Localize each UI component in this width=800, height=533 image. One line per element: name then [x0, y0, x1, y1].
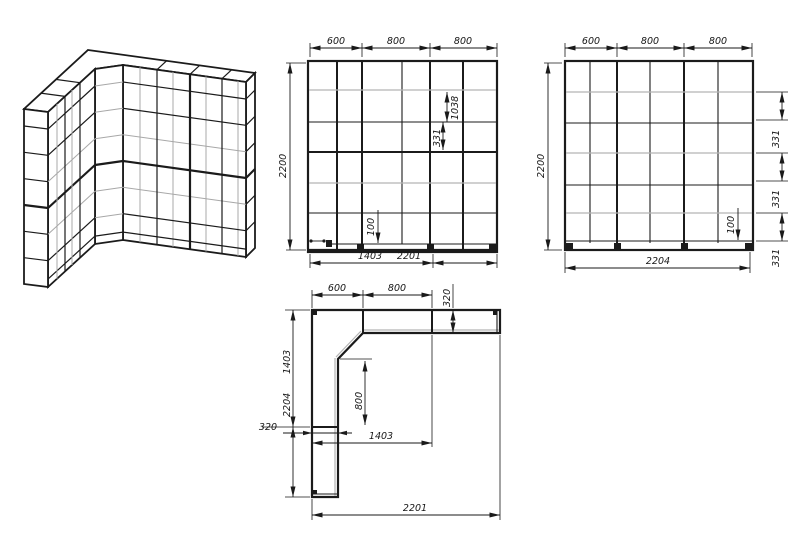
technical-drawing-page: 600 800 800 2200 1038 331 100 1403 2201 — [0, 0, 800, 533]
side-dim-800a: 800 — [641, 36, 659, 47]
front-dim-1038: 1038 — [450, 96, 461, 120]
side-dim-331a: 331 — [771, 130, 782, 148]
front-dim-2201: 2201 — [397, 251, 421, 262]
plan-dim-1403-inner: 1403 — [369, 431, 393, 442]
front-elevation: 600 800 800 2200 1038 331 100 1403 2201 — [278, 36, 497, 268]
side-dim-600: 600 — [582, 36, 600, 47]
side-dim-331c: 331 — [771, 249, 782, 267]
plan-view: 600 800 320 1403 2204 800 320 1403 2201 — [259, 283, 500, 520]
side-dim-800b: 800 — [709, 36, 727, 47]
front-dim-height: 2200 — [278, 154, 289, 178]
front-dim-1403: 1403 — [358, 251, 382, 262]
side-body-outline — [565, 61, 753, 250]
plan-dim-320-width: 320 — [259, 422, 277, 433]
side-dim-2204: 2204 — [646, 256, 670, 267]
front-dim-331: 331 — [432, 129, 443, 147]
plan-dim-320-depth: 320 — [442, 289, 453, 307]
drawing-svg: 600 800 800 2200 1038 331 100 1403 2201 — [0, 0, 800, 533]
plan-dim-2204: 2204 — [282, 393, 293, 417]
side-dim-331b: 331 — [771, 190, 782, 208]
plan-dim-800-inner: 800 — [354, 392, 365, 410]
plan-dim-2201: 2201 — [403, 503, 427, 514]
front-dim-100: 100 — [366, 218, 377, 236]
plan-dim-800: 800 — [388, 283, 406, 294]
plan-dim-1403-left: 1403 — [282, 350, 293, 374]
front-dim-800a: 800 — [387, 36, 405, 47]
front-dim-800b: 800 — [454, 36, 472, 47]
isometric-view — [24, 50, 255, 287]
side-elevation: 600 800 800 2200 331 331 331 100 2204 — [536, 36, 788, 273]
side-dim-height: 2200 — [536, 154, 547, 178]
side-dim-100: 100 — [726, 216, 737, 234]
plan-dim-600: 600 — [328, 283, 346, 294]
plan-outline — [312, 310, 500, 497]
front-dim-600: 600 — [327, 36, 345, 47]
